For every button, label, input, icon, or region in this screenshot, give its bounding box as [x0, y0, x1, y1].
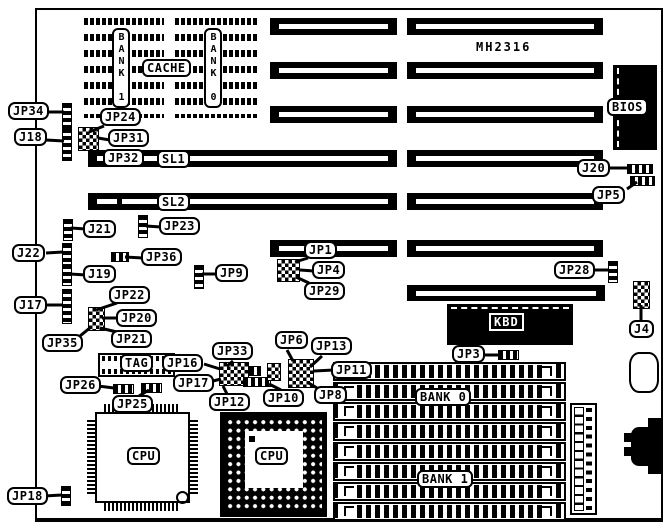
callout-jp1: JP1 [304, 241, 337, 259]
bios-label: BIOS [607, 98, 648, 116]
callout-jp9: JP9 [215, 264, 248, 282]
sl2-label: SL2 [157, 193, 190, 211]
callout-jp8: JP8 [314, 386, 347, 404]
tag-label: TAG [120, 354, 153, 372]
callout-j21: J21 [83, 220, 116, 238]
callout-jp22: JP22 [109, 286, 150, 304]
pga-cpu-label: CPU [255, 447, 288, 465]
callout-jp20: JP20 [116, 309, 157, 327]
callout-j18: J18 [14, 128, 47, 146]
cache-label: CACHE [142, 59, 191, 77]
simm-bank0-label: BANK 0 [415, 388, 471, 406]
callout-jp36: JP36 [141, 248, 182, 266]
callout-jp6: JP6 [275, 331, 308, 349]
callout-jp23: JP23 [159, 217, 200, 235]
callout-jp4: JP4 [312, 261, 345, 279]
callout-j20: J20 [577, 159, 610, 177]
callout-j19: J19 [83, 265, 116, 283]
callout-jp18: JP18 [7, 487, 48, 505]
callout-j4: J4 [629, 320, 654, 338]
callout-jp21: JP21 [111, 330, 152, 348]
callout-jp34: JP34 [8, 102, 49, 120]
callout-jp35: JP35 [42, 334, 83, 352]
callout-jp26: JP26 [60, 376, 101, 394]
callout-jp25: JP25 [112, 395, 153, 413]
qfp-cpu-label: CPU [127, 447, 160, 465]
callout-jp3: JP3 [452, 345, 485, 363]
callout-jp13: JP13 [311, 337, 352, 355]
callout-jp11: JP11 [331, 361, 372, 379]
cache-bank1-label: BANK 1 [112, 28, 130, 108]
kbd-label: KBD [489, 313, 524, 331]
callout-j17: J17 [14, 296, 47, 314]
jp32-label: JP32 [103, 149, 144, 167]
callout-jp31: JP31 [108, 129, 149, 147]
callout-jp16: JP16 [162, 354, 203, 372]
callout-jp33: JP33 [212, 342, 253, 360]
callout-jp10: JP10 [263, 389, 304, 407]
callout-jp17: JP17 [173, 374, 214, 392]
callout-jp24: JP24 [100, 108, 141, 126]
callout-jp29: JP29 [304, 282, 345, 300]
callout-jp28: JP28 [554, 261, 595, 279]
sl1-label: SL1 [157, 150, 190, 168]
callout-jp5: JP5 [592, 186, 625, 204]
simm-bank1-label: BANK 1 [417, 470, 473, 488]
motherboard-jumper-diagram: BANK 1 BANK 0 CACHE MH2316 BIOS KBD TAG … [0, 0, 667, 527]
cache-bank0-label: BANK 0 [204, 28, 222, 108]
callout-j22: J22 [12, 244, 45, 262]
callout-jp12: JP12 [209, 393, 250, 411]
